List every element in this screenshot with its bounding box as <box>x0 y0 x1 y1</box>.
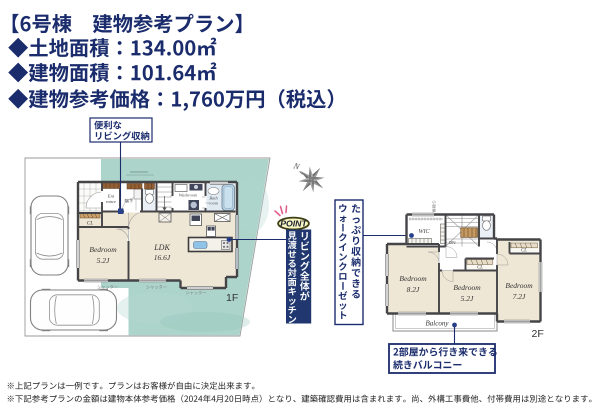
svg-text:room: room <box>209 201 218 206</box>
svg-text:8.2J: 8.2J <box>407 285 420 294</box>
svg-text:N: N <box>291 160 302 172</box>
svg-text:2F: 2F <box>532 328 544 340</box>
svg-text:Bedroom: Bedroom <box>453 283 481 292</box>
svg-text:Washroom: Washroom <box>179 193 197 198</box>
svg-text:Ent: Ent <box>107 194 115 199</box>
svg-text:Bedroom: Bedroom <box>399 274 427 283</box>
svg-text:Bedroom: Bedroom <box>89 245 117 254</box>
svg-text:7.2J: 7.2J <box>513 292 526 301</box>
svg-text:1F: 1F <box>226 292 238 304</box>
svg-text:rance: rance <box>106 199 116 204</box>
svg-text:CL: CL <box>87 221 94 227</box>
svg-text:5.2J: 5.2J <box>461 294 474 303</box>
svg-text:WIC: WIC <box>419 229 431 235</box>
svg-text:POINT: POINT <box>280 218 307 228</box>
svg-text:16.6J: 16.6J <box>154 253 171 262</box>
svg-text:DN: DN <box>449 240 456 245</box>
svg-text:Balcony: Balcony <box>426 320 450 328</box>
svg-text:5.2J: 5.2J <box>97 256 110 265</box>
svg-text:LDK: LDK <box>153 243 170 252</box>
svg-text:Bedroom: Bedroom <box>505 281 533 290</box>
